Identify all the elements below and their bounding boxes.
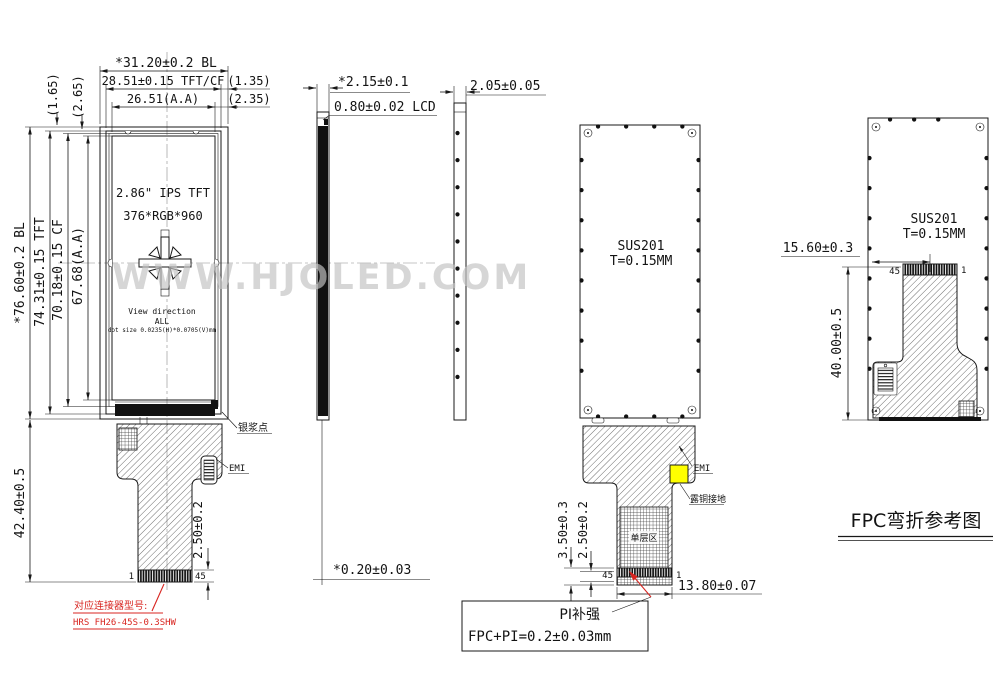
- pin45-label: 45: [602, 571, 613, 581]
- front-view: 2.86" IPS TFT 376*RGB*960 View direction…: [13, 52, 435, 629]
- pin45-label: 45: [889, 267, 900, 277]
- corner-hole-dot: [587, 409, 589, 411]
- bent-material-line2: T=0.15MM: [903, 227, 966, 242]
- top-notch-left: [125, 131, 131, 134]
- panel-resolution-label: 376*RGB*960: [123, 209, 202, 223]
- panel-size-label: 2.86" IPS TFT: [116, 186, 210, 200]
- back-view: SUS201 T=0.15MM 单层区 45 1 EMI 露铜接地 3.50±0…: [462, 125, 762, 651]
- height-bl-dim: *76.60±0.2 BL: [13, 222, 28, 324]
- connector-note-line2: HRS FH26-45S-0.3SHW: [73, 618, 177, 628]
- watermark: WWW.HJOLED.COM: [112, 258, 531, 298]
- stiffener-pad-grid: [119, 428, 137, 450]
- connector-note-leader: [152, 584, 164, 611]
- total-thickness-dim: *2.15±0.1: [338, 75, 408, 90]
- height-cf-dim: 70.18±0.15 CF: [51, 219, 66, 321]
- bent-pad-grid: [959, 401, 974, 417]
- corner-hole-dot: [875, 126, 877, 128]
- width-tft-dim: 28.51±0.15 TFT/CF: [102, 74, 225, 88]
- frame-thickness-dim: 2.05±0.05: [470, 79, 540, 94]
- copper-ground-pad: [670, 465, 688, 483]
- width-aa-dim: 26.51(A.A): [127, 92, 199, 106]
- back-connector-pins: [617, 568, 672, 577]
- offset-top2-dim: (2.65): [71, 75, 85, 118]
- emi-label: EMI: [694, 464, 710, 474]
- dot-size-label: dot size 0.0235(H)*0.0705(V)mm: [108, 327, 217, 334]
- height-tft-dim: 74.31±0.15 TFT: [33, 217, 48, 327]
- connector-note-line1: 对应连接器型号:: [74, 599, 147, 612]
- bent-material-line1: SUS201: [911, 212, 958, 227]
- top-notch-right: [193, 131, 199, 134]
- side-detail: [324, 119, 328, 125]
- lcd-thickness-dim: 0.80±0.02 LCD: [334, 100, 436, 115]
- emi-coil-icon: [204, 460, 214, 480]
- pin1-label: 1: [961, 266, 966, 276]
- bent-bottom-bar: [879, 417, 981, 421]
- pi-callout-line1: PI补强: [559, 607, 600, 623]
- view-direction-label: View direction: [128, 307, 196, 316]
- corner-hole-dot: [691, 132, 693, 134]
- shield-material-line2: T=0.15MM: [610, 254, 673, 269]
- offset-right1-dim: (1.35): [227, 74, 270, 88]
- copper-ground-label: 露铜接地: [690, 493, 726, 505]
- driver-ic-bar: [115, 404, 215, 416]
- silver-dot-label: 银浆点: [238, 421, 268, 434]
- copper-ground-leader: [680, 484, 690, 499]
- shield-tab: [667, 418, 679, 423]
- film-thickness-dim: *0.20±0.03: [333, 563, 411, 578]
- connector-width-dim: 13.80±0.07: [678, 579, 756, 594]
- connector-height-dim: 2.50±0.2: [191, 501, 205, 559]
- frame-side-view: 2.05±0.05: [440, 79, 546, 420]
- corner-hole-dot: [587, 132, 589, 134]
- back-connector-body: [617, 577, 672, 585]
- fpc-length-dim: 42.40±0.5: [13, 468, 28, 538]
- pi-callout-line2: FPC+PI=0.2±0.03mm: [468, 629, 611, 645]
- shield-material-line1: SUS201: [618, 239, 665, 254]
- back-shield-outline: [580, 125, 700, 418]
- bent-view-title: FPC弯折参考图: [851, 510, 982, 532]
- offset-right2-dim: (2.35): [227, 92, 270, 106]
- fpc-bent-view: SUS201 T=0.15MM 45 1 15.60±0.3 40.00±0.5…: [781, 118, 993, 541]
- lcd-drawing-canvas: 2.86" IPS TFT 376*RGB*960 View direction…: [0, 0, 1000, 700]
- offset-top1-dim: (1.65): [46, 73, 60, 116]
- side-view: *2.15±0.1 0.80±0.02 LCD *0.20±0.03: [303, 75, 437, 585]
- silver-paste-dot: [211, 400, 218, 409]
- corner-hole-dot: [979, 126, 981, 128]
- pin1-label: 1: [129, 572, 134, 582]
- shield-tab: [592, 418, 604, 423]
- view-direction-value: ALL: [155, 317, 170, 326]
- fold-length-dim: 40.00±0.5: [830, 308, 845, 378]
- corner-hole-dot: [691, 409, 693, 411]
- corner-hole-dot: [979, 410, 981, 412]
- pin45-label: 45: [195, 572, 206, 582]
- emi-label: EMI: [229, 464, 245, 474]
- width-bl-dim: *31.20±0.2 BL: [115, 56, 217, 71]
- connector-pos-dim: 15.60±0.3: [783, 241, 853, 256]
- fpc-bottom-dim: 3.50±0.3: [556, 501, 570, 559]
- fpc-connector: [138, 570, 192, 582]
- bent-emi-coil-icon: [878, 368, 893, 391]
- height-aa-dim: 67.68(A.A): [71, 227, 86, 305]
- silver-dot-leader: [222, 412, 237, 428]
- single-layer-label: 单层区: [630, 532, 657, 544]
- back-connector-height-dim: 2.50±0.2: [576, 501, 590, 559]
